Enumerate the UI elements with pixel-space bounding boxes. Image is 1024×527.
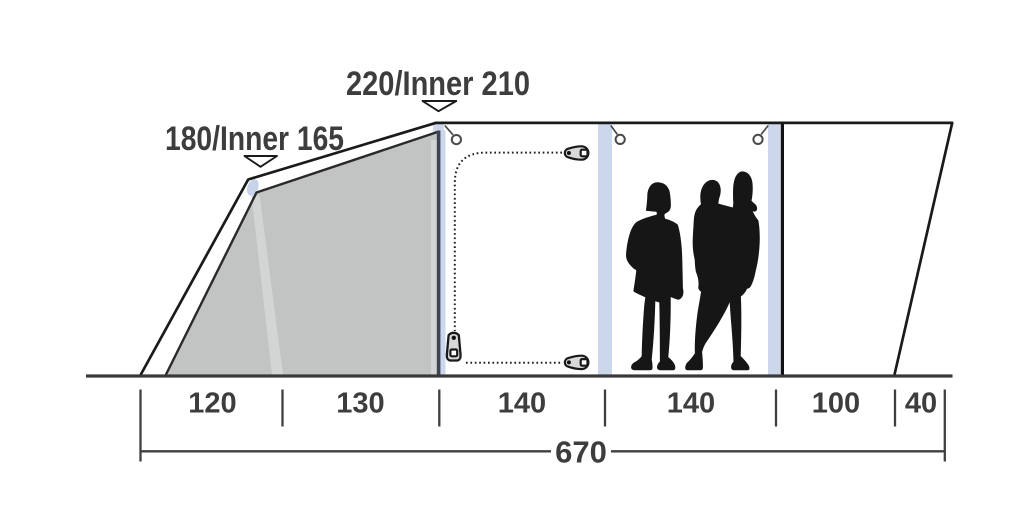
svg-text:120: 120 (188, 388, 236, 420)
svg-text:130: 130 (336, 388, 384, 420)
svg-text:40: 40 (905, 388, 937, 420)
svg-text:220/Inner 210: 220/Inner 210 (346, 65, 530, 103)
svg-text:140: 140 (667, 388, 715, 420)
svg-text:140: 140 (498, 388, 546, 420)
svg-text:670: 670 (555, 435, 607, 470)
svg-text:180/Inner 165: 180/Inner 165 (165, 120, 344, 158)
svg-text:100: 100 (812, 388, 860, 420)
